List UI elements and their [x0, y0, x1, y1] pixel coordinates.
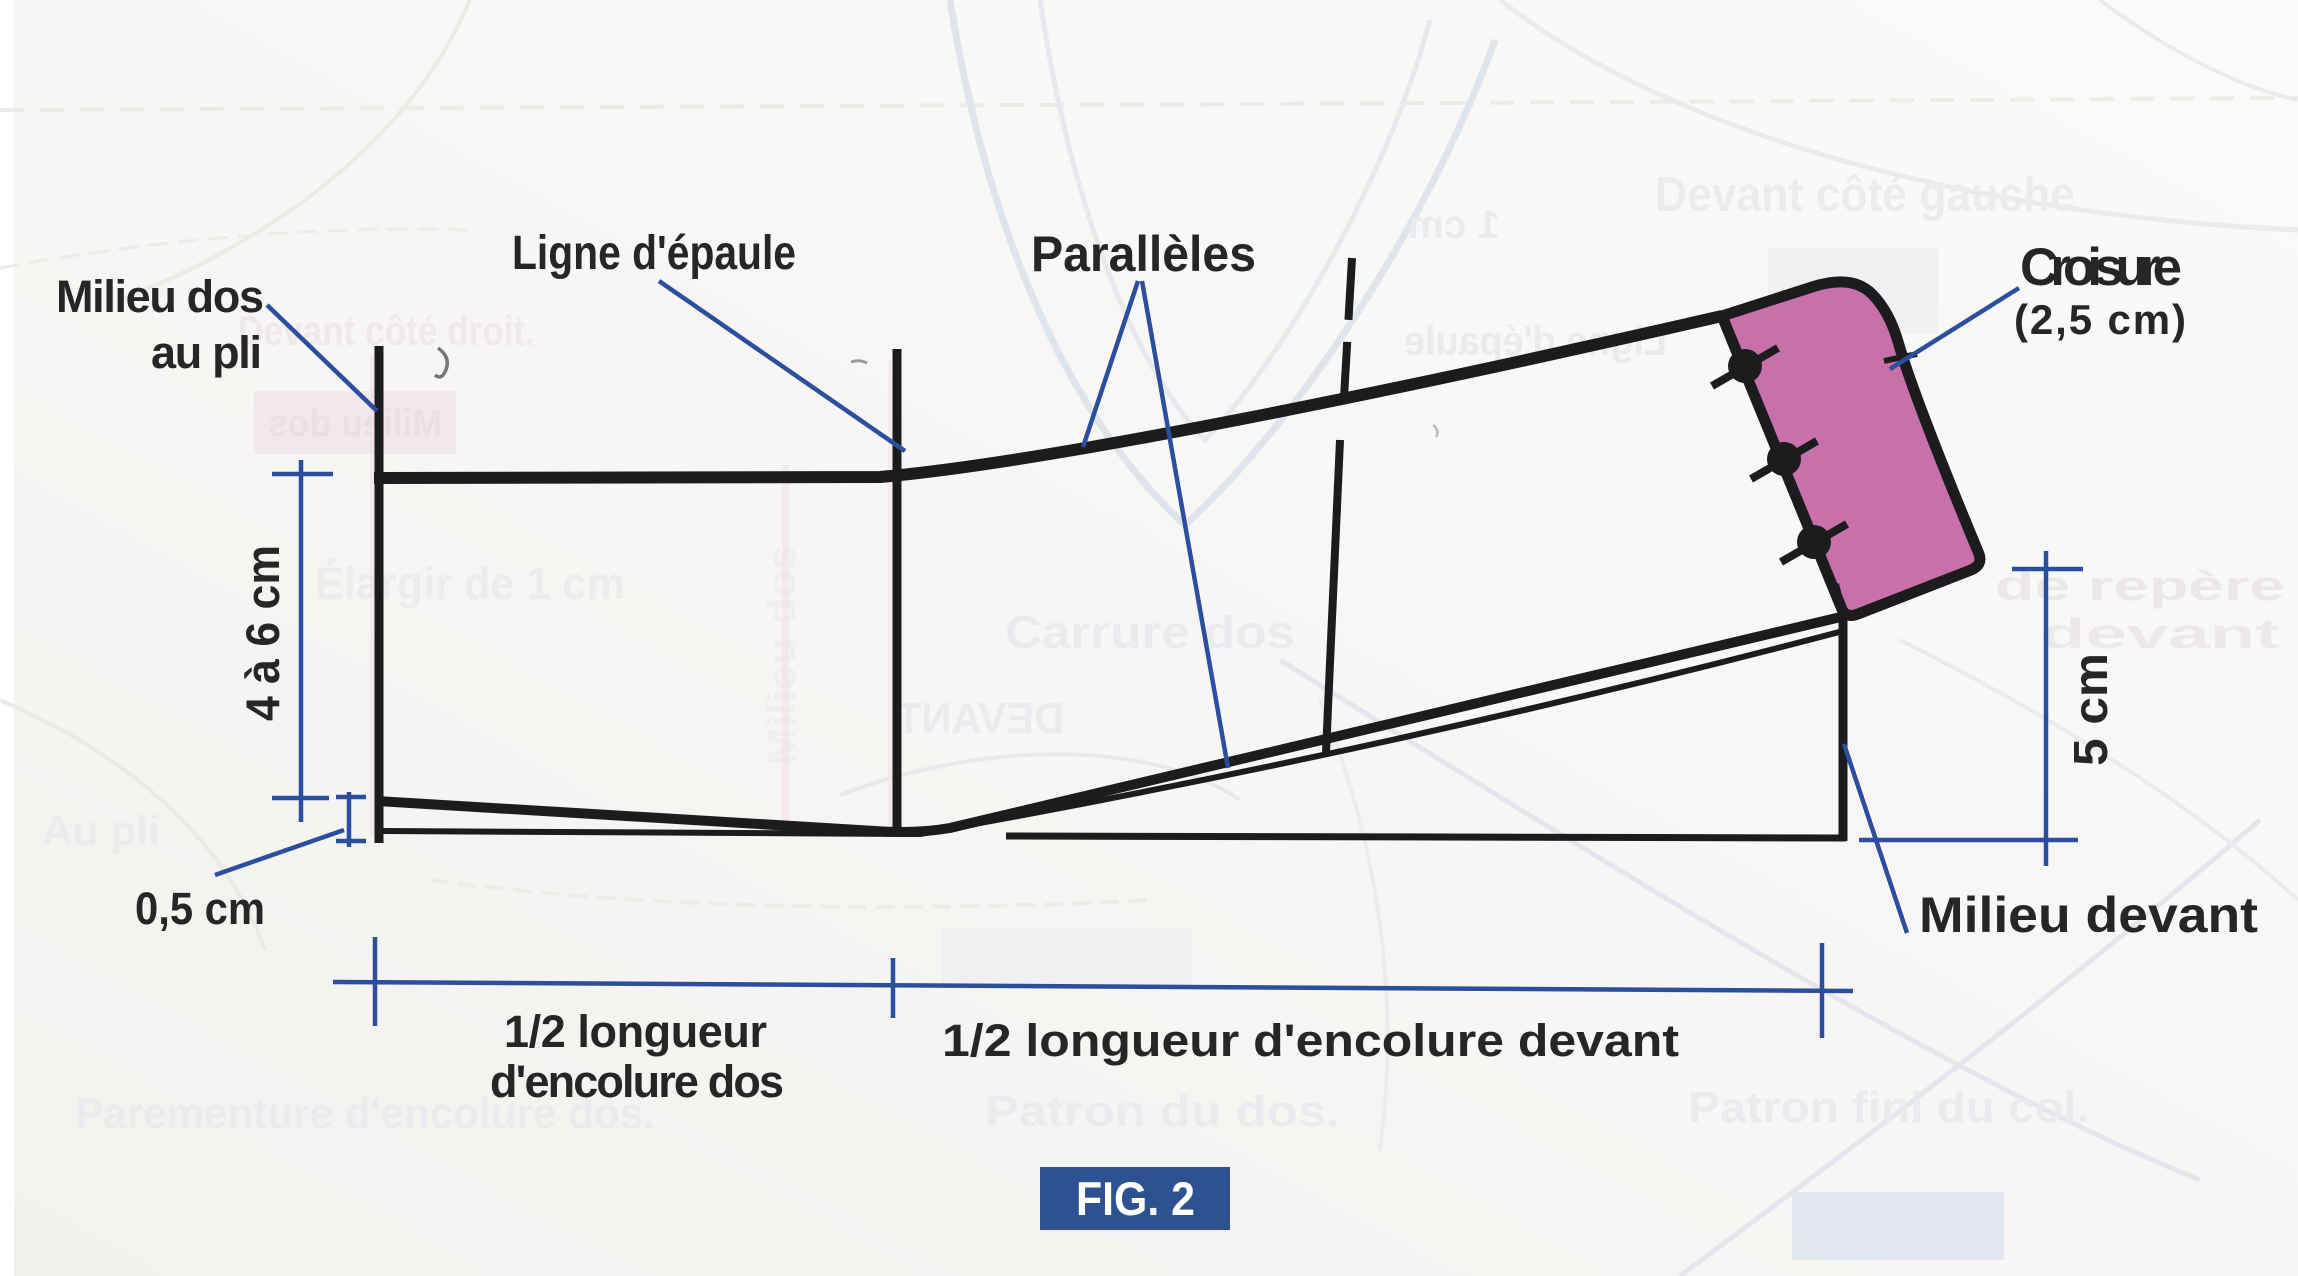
svg-text:Parallèles: Parallèles	[1031, 226, 1256, 282]
svg-text:FIG. 2: FIG. 2	[1076, 1172, 1195, 1225]
svg-text:Devant côté gauche: Devant côté gauche	[1655, 168, 2075, 222]
svg-text:5 cm: 5 cm	[2065, 653, 2118, 766]
svg-text:1/2 longueur d'encolure devant: 1/2 longueur d'encolure devant	[942, 1015, 1679, 1066]
svg-text:1 cm: 1 cm	[1408, 203, 1500, 247]
svg-text:devant: devant	[2040, 610, 2280, 657]
svg-text:0,5 cm: 0,5 cm	[135, 883, 265, 934]
svg-text:Devant côté droit.: Devant côté droit.	[238, 307, 535, 354]
svg-text:(2,5 cm): (2,5 cm)	[2014, 296, 2186, 343]
svg-text:Milieu dos: Milieu dos	[268, 403, 442, 445]
svg-text:d'encolure dos: d'encolure dos	[490, 1056, 784, 1107]
svg-text:Au pli: Au pli	[42, 807, 160, 854]
svg-text:Ligne d'épaule: Ligne d'épaule	[512, 227, 796, 280]
svg-text:Patron fini du col.: Patron fini du col.	[1688, 1083, 2090, 1132]
svg-text:DEVANT: DEVANT	[896, 694, 1064, 743]
svg-text:Milieu dos: Milieu dos	[56, 271, 264, 322]
svg-text:Patron du dos.: Patron du dos.	[985, 1087, 1340, 1136]
svg-text:au pli: au pli	[151, 327, 262, 378]
svg-text:Élargir de 1 cm: Élargir de 1 cm	[315, 558, 625, 609]
svg-text:Croisure: Croisure	[2020, 238, 2182, 297]
svg-text:4 à 6 cm: 4 à 6 cm	[236, 545, 289, 721]
svg-text:Milieu devant: Milieu devant	[1919, 887, 2258, 943]
svg-text:Carrure dos: Carrure dos	[1005, 606, 1295, 658]
svg-text:1/2 longueur: 1/2 longueur	[504, 1006, 767, 1057]
